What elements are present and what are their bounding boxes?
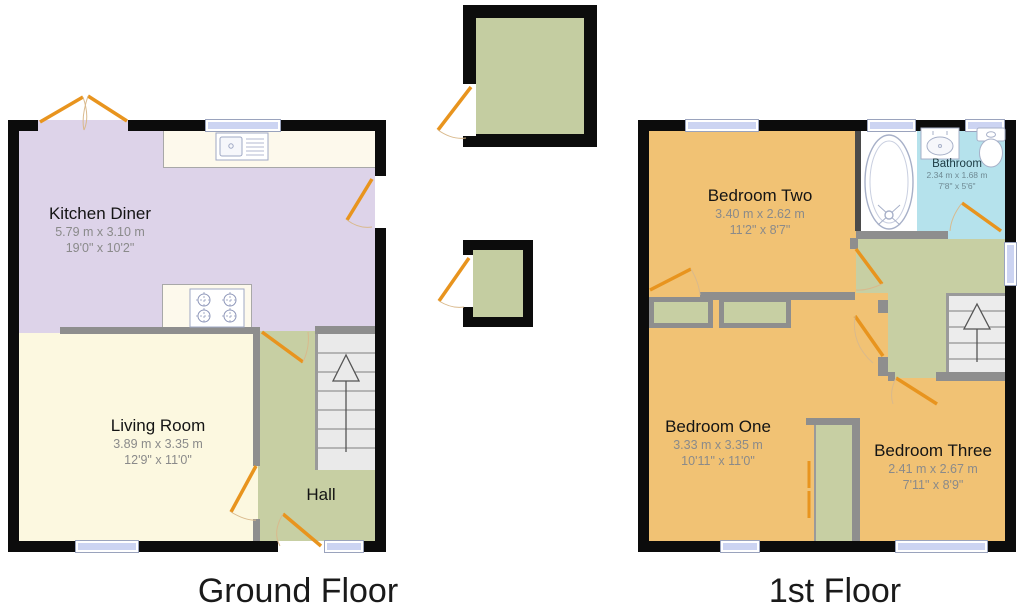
bathtub: [865, 135, 913, 229]
room-dim-imperial: 10'11" x 11'0": [665, 453, 771, 469]
french-door-left: [40, 97, 87, 130]
room-dim-imperial: 7'11" x 8'9": [874, 477, 992, 493]
room-name: Bedroom Three: [874, 441, 992, 461]
outbuilding-large-door: [438, 87, 471, 138]
kitchen-sink: [216, 133, 268, 160]
kitchen-diner-label: Kitchen Diner 5.79 m x 3.10 m 19'0" x 10…: [49, 204, 151, 256]
room-dim-metric: 3.89 m x 3.35 m: [111, 436, 206, 452]
french-door-right: [83, 96, 127, 130]
room-dim-imperial: 12'9" x 11'0": [111, 452, 206, 468]
room-name: Hall: [306, 485, 335, 505]
bathroom-door: [950, 203, 1001, 231]
door-swings: [40, 87, 1001, 546]
stairs-up-arrow-ground: [333, 355, 359, 452]
bathroom-label: Bathroom 2.34 m x 1.68 m 7'8" x 5'6": [927, 158, 988, 192]
room-dim-imperial: 19'0" x 10'2": [49, 240, 151, 256]
room-dim-metric: 2.41 m x 2.67 m: [874, 461, 992, 477]
kitchen-hall-door: [262, 332, 308, 362]
bathroom-sink: [921, 128, 959, 159]
bedroom-one-label: Bedroom One 3.33 m x 3.35 m 10'11" x 11'…: [665, 417, 771, 469]
plan-symbols: [0, 0, 1024, 613]
living-room-label: Living Room 3.89 m x 3.35 m 12'9" x 11'0…: [111, 416, 206, 468]
room-name: Living Room: [111, 416, 206, 436]
bedroom-two-label: Bedroom Two 3.40 m x 2.62 m 11'2" x 8'7": [708, 186, 813, 238]
floorplan-canvas: Kitchen Diner 5.79 m x 3.10 m 19'0" x 10…: [0, 0, 1024, 613]
room-name: Bedroom One: [665, 417, 771, 437]
bedroom3-door: [892, 378, 937, 404]
kitchen-side-door: [347, 179, 372, 227]
front-door: [277, 514, 321, 546]
room-dim-metric: 3.33 m x 3.35 m: [665, 437, 771, 453]
first-floor-title: 1st Floor: [769, 572, 901, 611]
room-name: Bedroom Two: [708, 186, 813, 206]
bedroom1-door: [854, 316, 883, 363]
room-dim-metric: 2.34 m x 1.68 m: [927, 170, 988, 181]
landing-bedroom2-door: [856, 249, 882, 290]
room-dim-metric: 5.79 m x 3.10 m: [49, 224, 151, 240]
room-dim-metric: 3.40 m x 2.62 m: [708, 206, 813, 222]
room-dim-imperial: 11'2" x 8'7": [708, 222, 813, 238]
ground-floor-title: Ground Floor: [198, 572, 398, 611]
hall-label: Hall: [306, 485, 335, 505]
bedroom2-door: [650, 269, 700, 295]
outbuilding-small-door: [439, 258, 469, 307]
living-hall-door: [231, 466, 256, 520]
bedroom-three-label: Bedroom Three 2.41 m x 2.67 m 7'11" x 8'…: [874, 441, 992, 493]
room-name: Kitchen Diner: [49, 204, 151, 224]
stairs-up-arrow-first: [964, 304, 990, 362]
room-name: Bathroom: [927, 158, 988, 170]
kitchen-hob: [190, 289, 244, 327]
room-dim-imperial: 7'8" x 5'6": [927, 181, 988, 192]
